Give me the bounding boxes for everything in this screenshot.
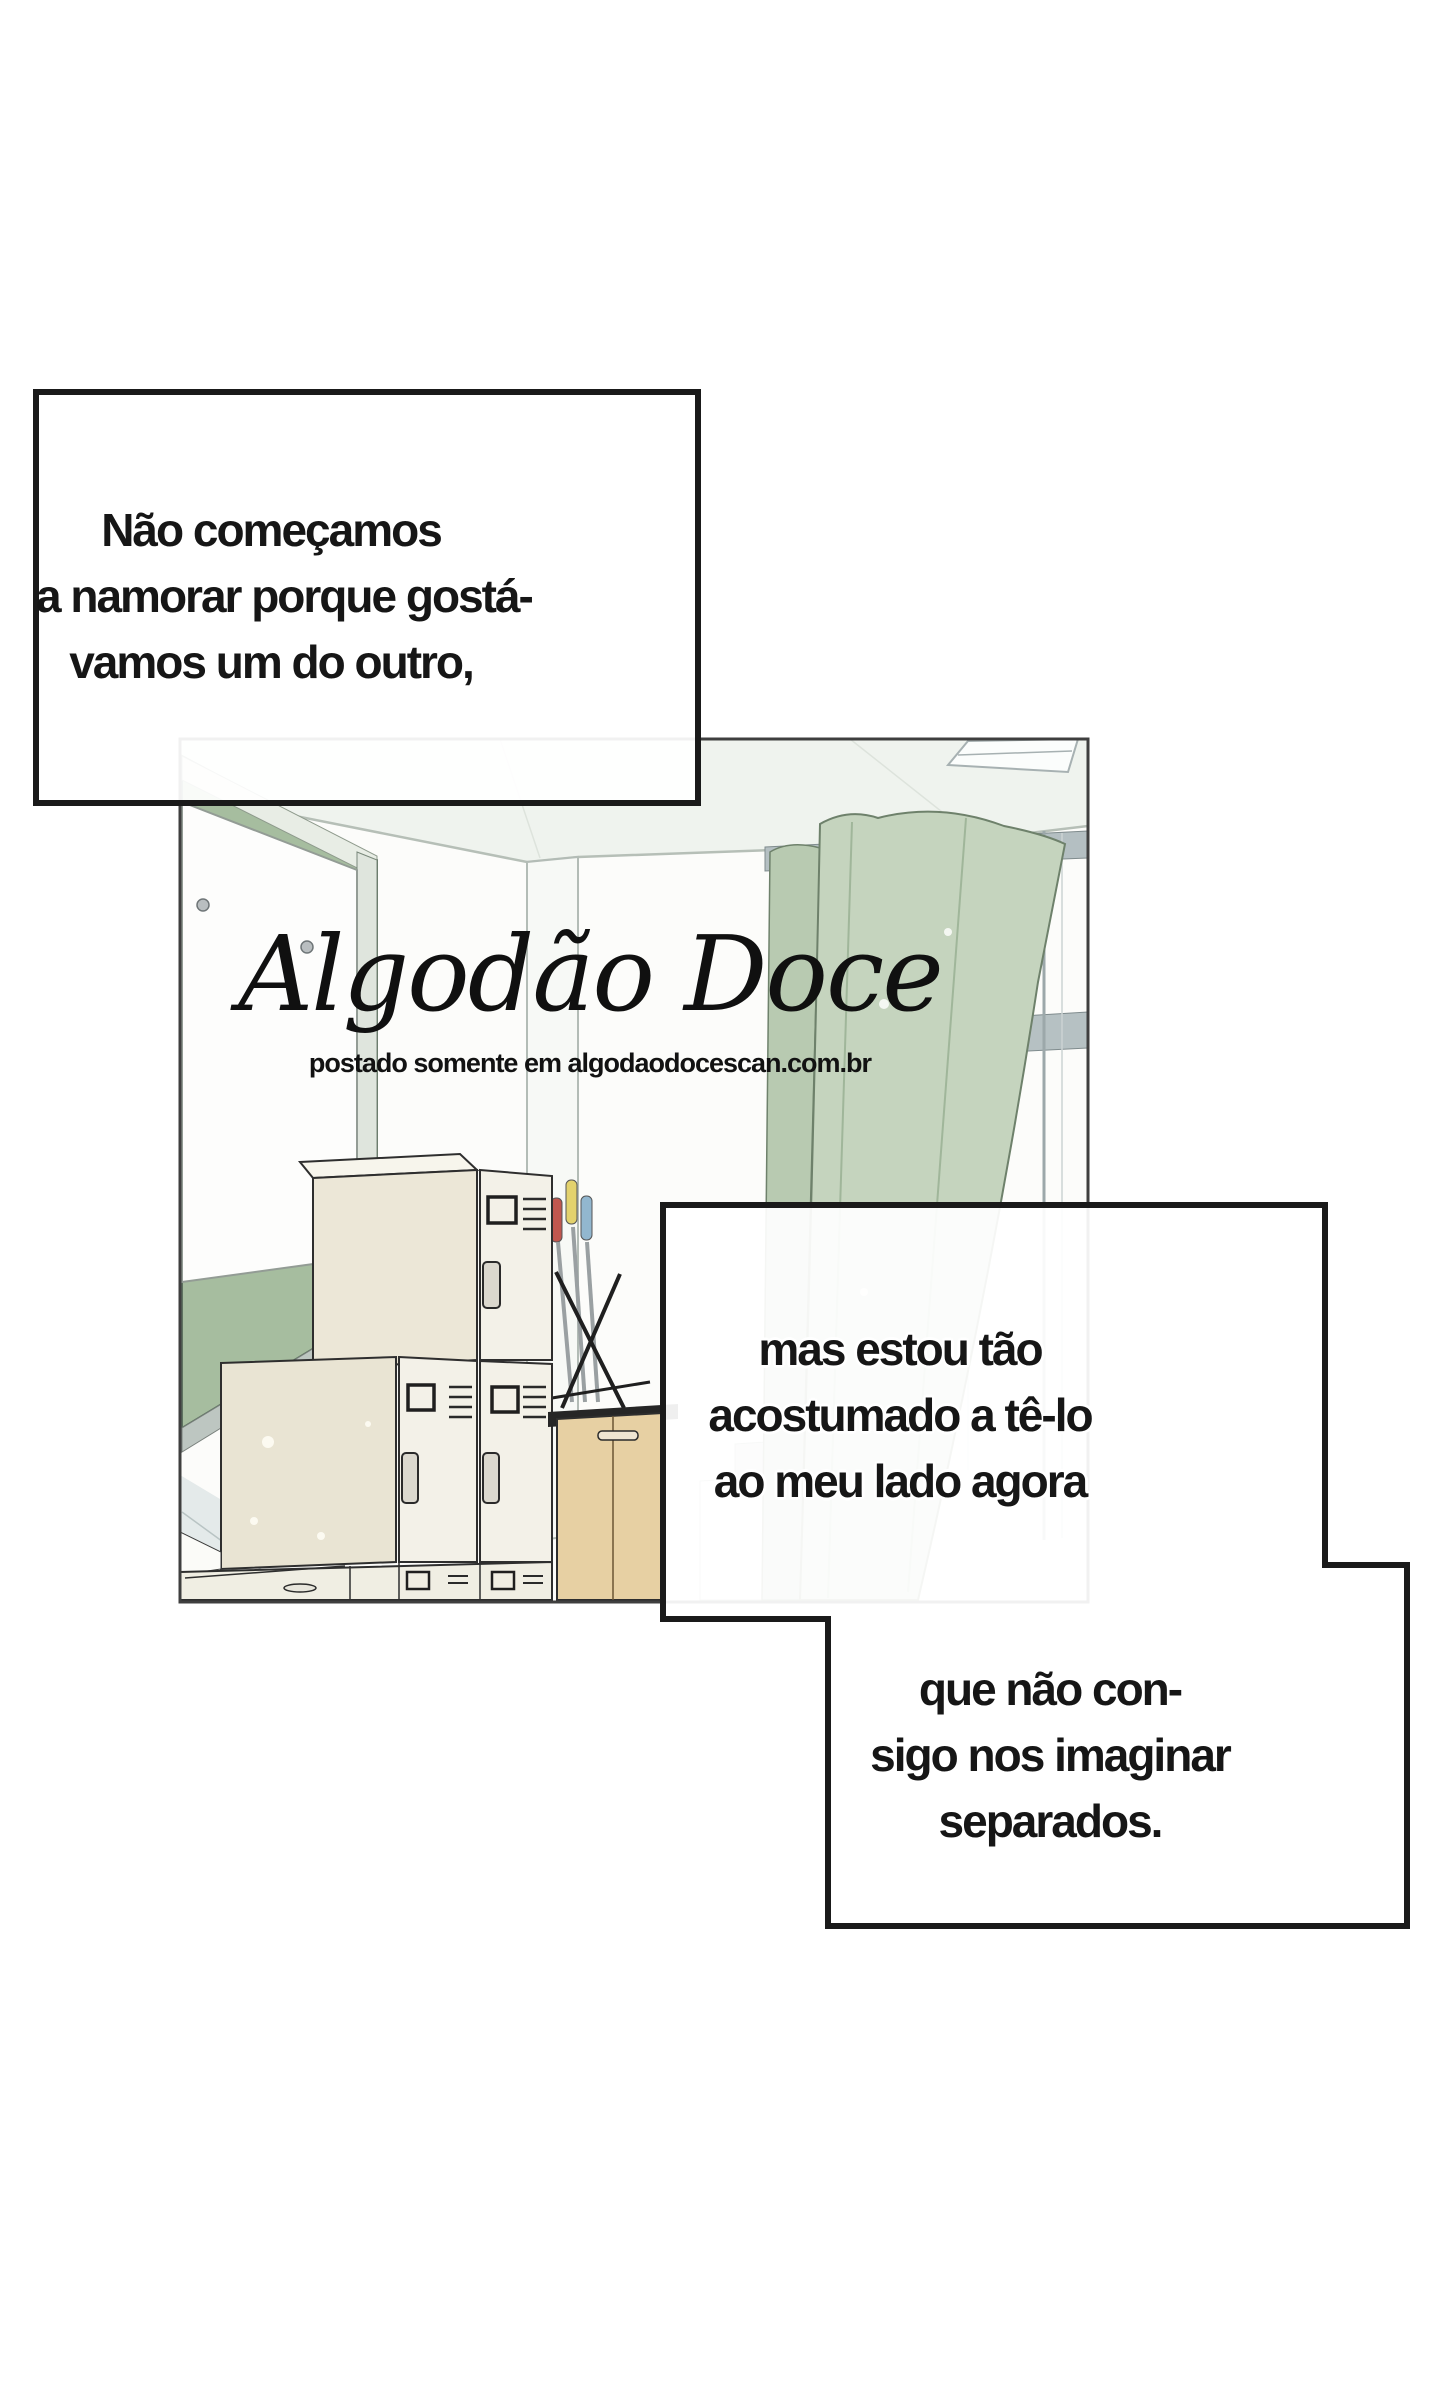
caption-line: mas estou tão bbox=[625, 1316, 1175, 1382]
caption-text-middle-right: mas estou tão acostumado a tê-lo ao meu … bbox=[625, 1316, 1175, 1514]
caption-line: sigo nos imaginar bbox=[765, 1722, 1335, 1788]
caption-line: que não con- bbox=[765, 1656, 1335, 1722]
caption-line: ao meu lado agora bbox=[625, 1448, 1175, 1514]
comic-page: Algodão Doce postado somente em algodaod… bbox=[0, 0, 1440, 2392]
ceiling-light bbox=[948, 739, 1078, 772]
watermark-subtitle: postado somente em algodaodocescan.com.b… bbox=[160, 1046, 1020, 1080]
caption-line: a namorar porque gostá- bbox=[36, 563, 506, 629]
caption-line: vamos um do outro, bbox=[36, 629, 506, 695]
caption-line: acostumado a tê-lo bbox=[625, 1382, 1175, 1448]
caption-text-bottom-right: que não con- sigo nos imaginar separados… bbox=[765, 1656, 1335, 1854]
watermark-title: Algodão Doce bbox=[160, 916, 1020, 1032]
caption-line: separados. bbox=[765, 1788, 1335, 1854]
caption-text-top-left: Não começamos a namorar porque gostá- va… bbox=[36, 497, 506, 695]
panel-artwork bbox=[0, 0, 1440, 2392]
caption-line: Não começamos bbox=[36, 497, 506, 563]
